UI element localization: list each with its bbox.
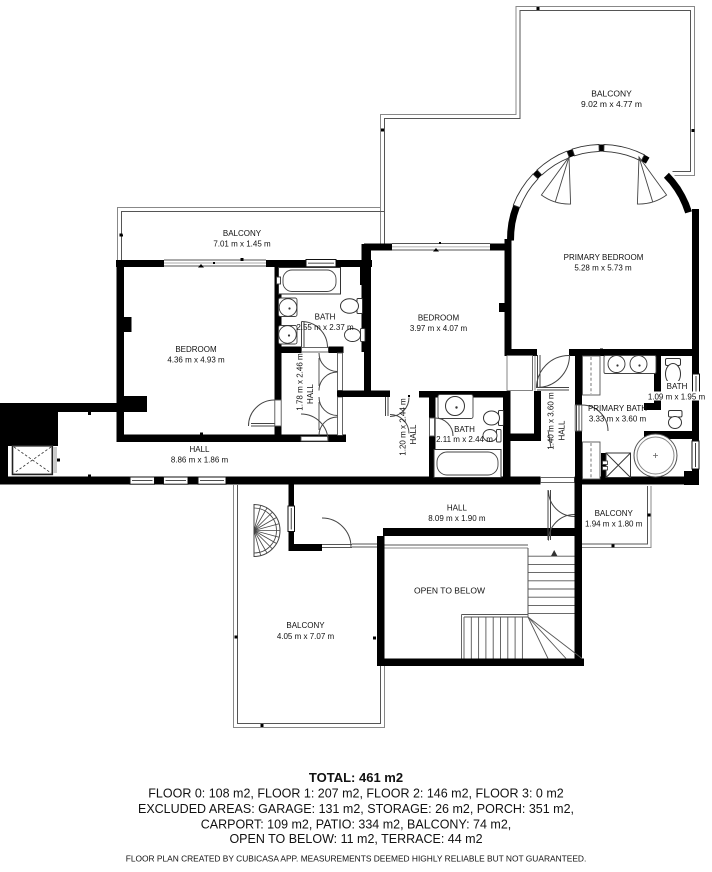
svg-text:1.09 m x 1.95 m: 1.09 m x 1.95 m (648, 393, 706, 402)
svg-text:HALL: HALL (189, 445, 210, 454)
svg-text:BEDROOM: BEDROOM (175, 345, 217, 354)
svg-text:BALCONY: BALCONY (223, 229, 262, 238)
svg-text:2.55 m x 2.37 m: 2.55 m x 2.37 m (296, 323, 354, 332)
svg-text:FLOOR 0: 108 m2, FLOOR 1: 207: FLOOR 0: 108 m2, FLOOR 1: 207 m2, FLOOR … (148, 787, 563, 801)
svg-text:PRIMARY BATH: PRIMARY BATH (588, 404, 647, 413)
svg-text:FLOOR PLAN CREATED BY CUBICASA: FLOOR PLAN CREATED BY CUBICASA APP. MEAS… (126, 854, 587, 864)
svg-text:BATH: BATH (454, 425, 475, 434)
svg-text:1.78 m x 2.46 m: 1.78 m x 2.46 m (296, 353, 305, 411)
svg-text:4.36 m x 4.93 m: 4.36 m x 4.93 m (167, 356, 225, 365)
svg-text:BEDROOM: BEDROOM (418, 314, 460, 323)
svg-text:1.94 m x 1.80 m: 1.94 m x 1.80 m (585, 520, 643, 529)
svg-text:HALL: HALL (409, 424, 418, 445)
svg-text:8.09 m x 1.90 m: 8.09 m x 1.90 m (428, 514, 486, 523)
svg-text:CARPORT: 109 m2, PATIO: 334 m2: CARPORT: 109 m2, PATIO: 334 m2, BALCONY:… (201, 818, 512, 832)
svg-text:3.33 m x 3.60 m: 3.33 m x 3.60 m (589, 415, 647, 424)
svg-text:OPEN TO BELOW: OPEN TO BELOW (414, 586, 485, 596)
svg-text:BALCONY: BALCONY (591, 89, 632, 99)
svg-text:3.97 m x 4.07 m: 3.97 m x 4.07 m (410, 324, 468, 333)
svg-text:OPEN TO BELOW: 11 m2, TERRACE:: OPEN TO BELOW: 11 m2, TERRACE: 44 m2 (229, 832, 482, 846)
svg-text:BATH: BATH (667, 382, 688, 391)
svg-text:BALCONY: BALCONY (595, 509, 634, 518)
svg-text:7.01 m x 1.45 m: 7.01 m x 1.45 m (213, 240, 271, 249)
svg-text:TOTAL: 461 m2: TOTAL: 461 m2 (309, 770, 403, 785)
svg-text:HALL: HALL (558, 420, 567, 441)
svg-text:BALCONY: BALCONY (286, 621, 325, 630)
svg-text:PRIMARY BEDROOM: PRIMARY BEDROOM (564, 253, 644, 262)
svg-text:5.28 m x 5.73 m: 5.28 m x 5.73 m (574, 264, 632, 273)
svg-text:4.05 m x 7.07 m: 4.05 m x 7.07 m (277, 632, 335, 641)
svg-text:HALL: HALL (447, 504, 468, 513)
svg-text:EXCLUDED AREAS: GARAGE: 131 m2: EXCLUDED AREAS: GARAGE: 131 m2, STORAGE:… (138, 802, 574, 816)
svg-text:9.02 m x 4.77 m: 9.02 m x 4.77 m (581, 99, 642, 109)
svg-text:1.20 m x 2.44 m: 1.20 m x 2.44 m (399, 398, 408, 456)
svg-text:HALL: HALL (306, 383, 315, 404)
svg-text:2.11 m x 2.44 m: 2.11 m x 2.44 m (436, 435, 493, 444)
svg-text:1.40 m x 3.60 m: 1.40 m x 3.60 m (547, 392, 556, 450)
svg-text:BATH: BATH (315, 313, 336, 322)
svg-text:8.86 m x 1.86 m: 8.86 m x 1.86 m (171, 456, 229, 465)
